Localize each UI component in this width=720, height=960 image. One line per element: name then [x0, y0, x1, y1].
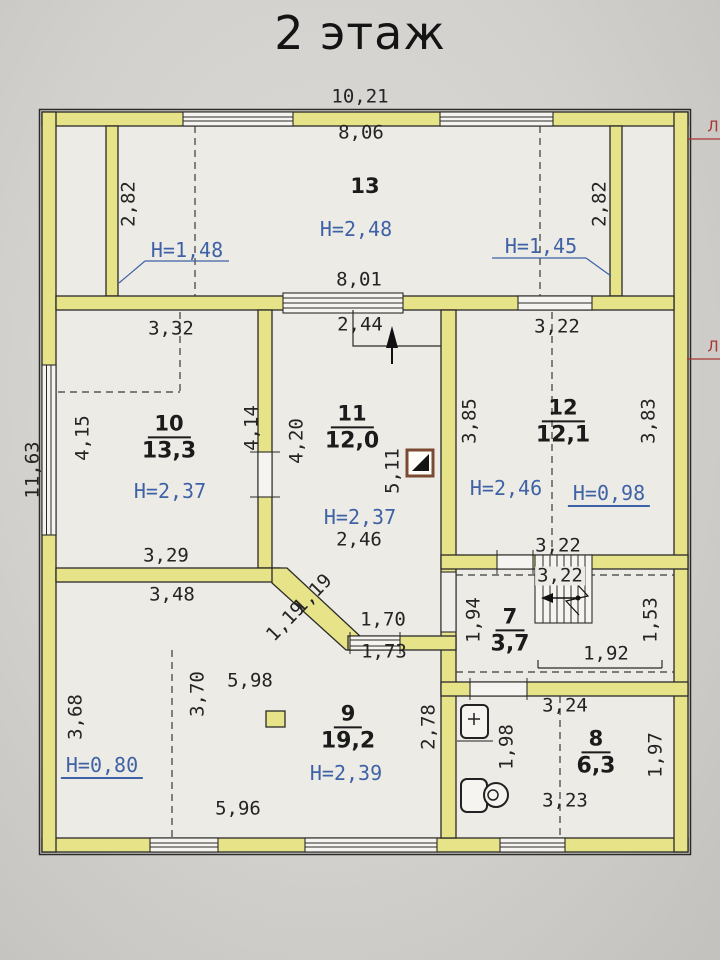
- room-number: 11: [330, 402, 373, 428]
- room-number: 10: [147, 412, 190, 438]
- dim-3-23: 3,23: [542, 792, 588, 811]
- room-13-label: 13: [343, 175, 386, 199]
- dim-2-44: 2,44: [337, 316, 383, 335]
- dim-11-63: 11,63: [24, 441, 43, 498]
- room-10-label: 1013,3: [142, 412, 196, 463]
- dim-8-06: 8,06: [338, 124, 384, 143]
- dim-3-32: 3,32: [148, 320, 194, 339]
- dim-3-85: 3,85: [461, 398, 480, 444]
- room-number: 9: [334, 702, 363, 728]
- room-number: 8: [582, 727, 611, 753]
- dim-1-53: 1,53: [642, 597, 661, 643]
- dim-3-22-stair: 3,22: [535, 567, 585, 586]
- room-12-label: 1212,1: [536, 396, 590, 447]
- room-9-label: 919,2: [321, 702, 375, 753]
- room-area: 12,1: [536, 422, 590, 447]
- dim-4-15: 4,15: [74, 415, 93, 461]
- dim-1-97: 1,97: [647, 732, 666, 778]
- dimension-labels: 10,218,068,012,822,82H=2,48H=1,48H=1,453…: [0, 0, 720, 960]
- room-7-label: 73,7: [491, 605, 530, 656]
- room-area: 12,0: [325, 428, 379, 453]
- dim-1-92: 1,92: [583, 645, 629, 664]
- height-1-45: H=1,45: [505, 236, 577, 256]
- height-2-37-room11: H=2,37: [324, 507, 396, 527]
- room-area: 13,3: [142, 438, 196, 463]
- dim-3-24: 3,24: [542, 697, 588, 716]
- height-0-98: H=0,98: [568, 483, 650, 507]
- red-mark-top: Л: [707, 120, 718, 135]
- dim-1-98: 1,98: [498, 724, 517, 770]
- dim-5-96: 5,96: [215, 800, 261, 819]
- dim-4-14: 4,14: [243, 405, 262, 451]
- room-8-label: 86,3: [577, 727, 616, 778]
- room-area: 6,3: [577, 753, 616, 778]
- room-area: 19,2: [321, 728, 375, 753]
- dim-3-29: 3,29: [143, 547, 189, 566]
- dim-2-78: 2,78: [420, 704, 439, 750]
- dim-1-70: 1,70: [360, 611, 406, 630]
- dim-4-20: 4,20: [288, 418, 307, 464]
- red-mark-middle: Л: [707, 340, 718, 355]
- dim-3-22-room12-bottom: 3,22: [535, 537, 581, 556]
- dim-1-73: 1,73: [361, 643, 407, 662]
- dim-1-94: 1,94: [465, 597, 484, 643]
- height-1-48: H=1,48: [151, 240, 223, 260]
- dim-2-82-left: 2,82: [120, 181, 139, 227]
- dim-2-46: 2,46: [336, 531, 382, 550]
- height-0-80: H=0,80: [61, 755, 143, 779]
- height-2-48: H=2,48: [320, 219, 392, 239]
- dim-1-19-lower: 1,19: [263, 599, 308, 645]
- dim-8-01: 8,01: [336, 271, 382, 290]
- dim-5-11: 5,11: [384, 448, 403, 494]
- room-11-label: 1112,0: [325, 402, 379, 453]
- dim-5-98: 5,98: [227, 672, 273, 691]
- height-2-39: H=2,39: [310, 763, 382, 783]
- room-number: 13: [343, 175, 386, 199]
- dim-3-83: 3,83: [640, 398, 659, 444]
- height-2-46: H=2,46: [470, 478, 542, 498]
- dim-3-68: 3,68: [67, 694, 86, 740]
- dim-10-21: 10,21: [331, 88, 388, 107]
- room-number: 12: [541, 396, 584, 422]
- dim-3-70: 3,70: [189, 671, 208, 717]
- dim-3-48: 3,48: [149, 586, 195, 605]
- height-2-37-room10: H=2,37: [134, 481, 206, 501]
- dim-3-22-room12-top: 3,22: [534, 318, 580, 337]
- dim-2-82-right: 2,82: [591, 181, 610, 227]
- room-number: 7: [496, 605, 525, 631]
- room-area: 3,7: [491, 631, 530, 656]
